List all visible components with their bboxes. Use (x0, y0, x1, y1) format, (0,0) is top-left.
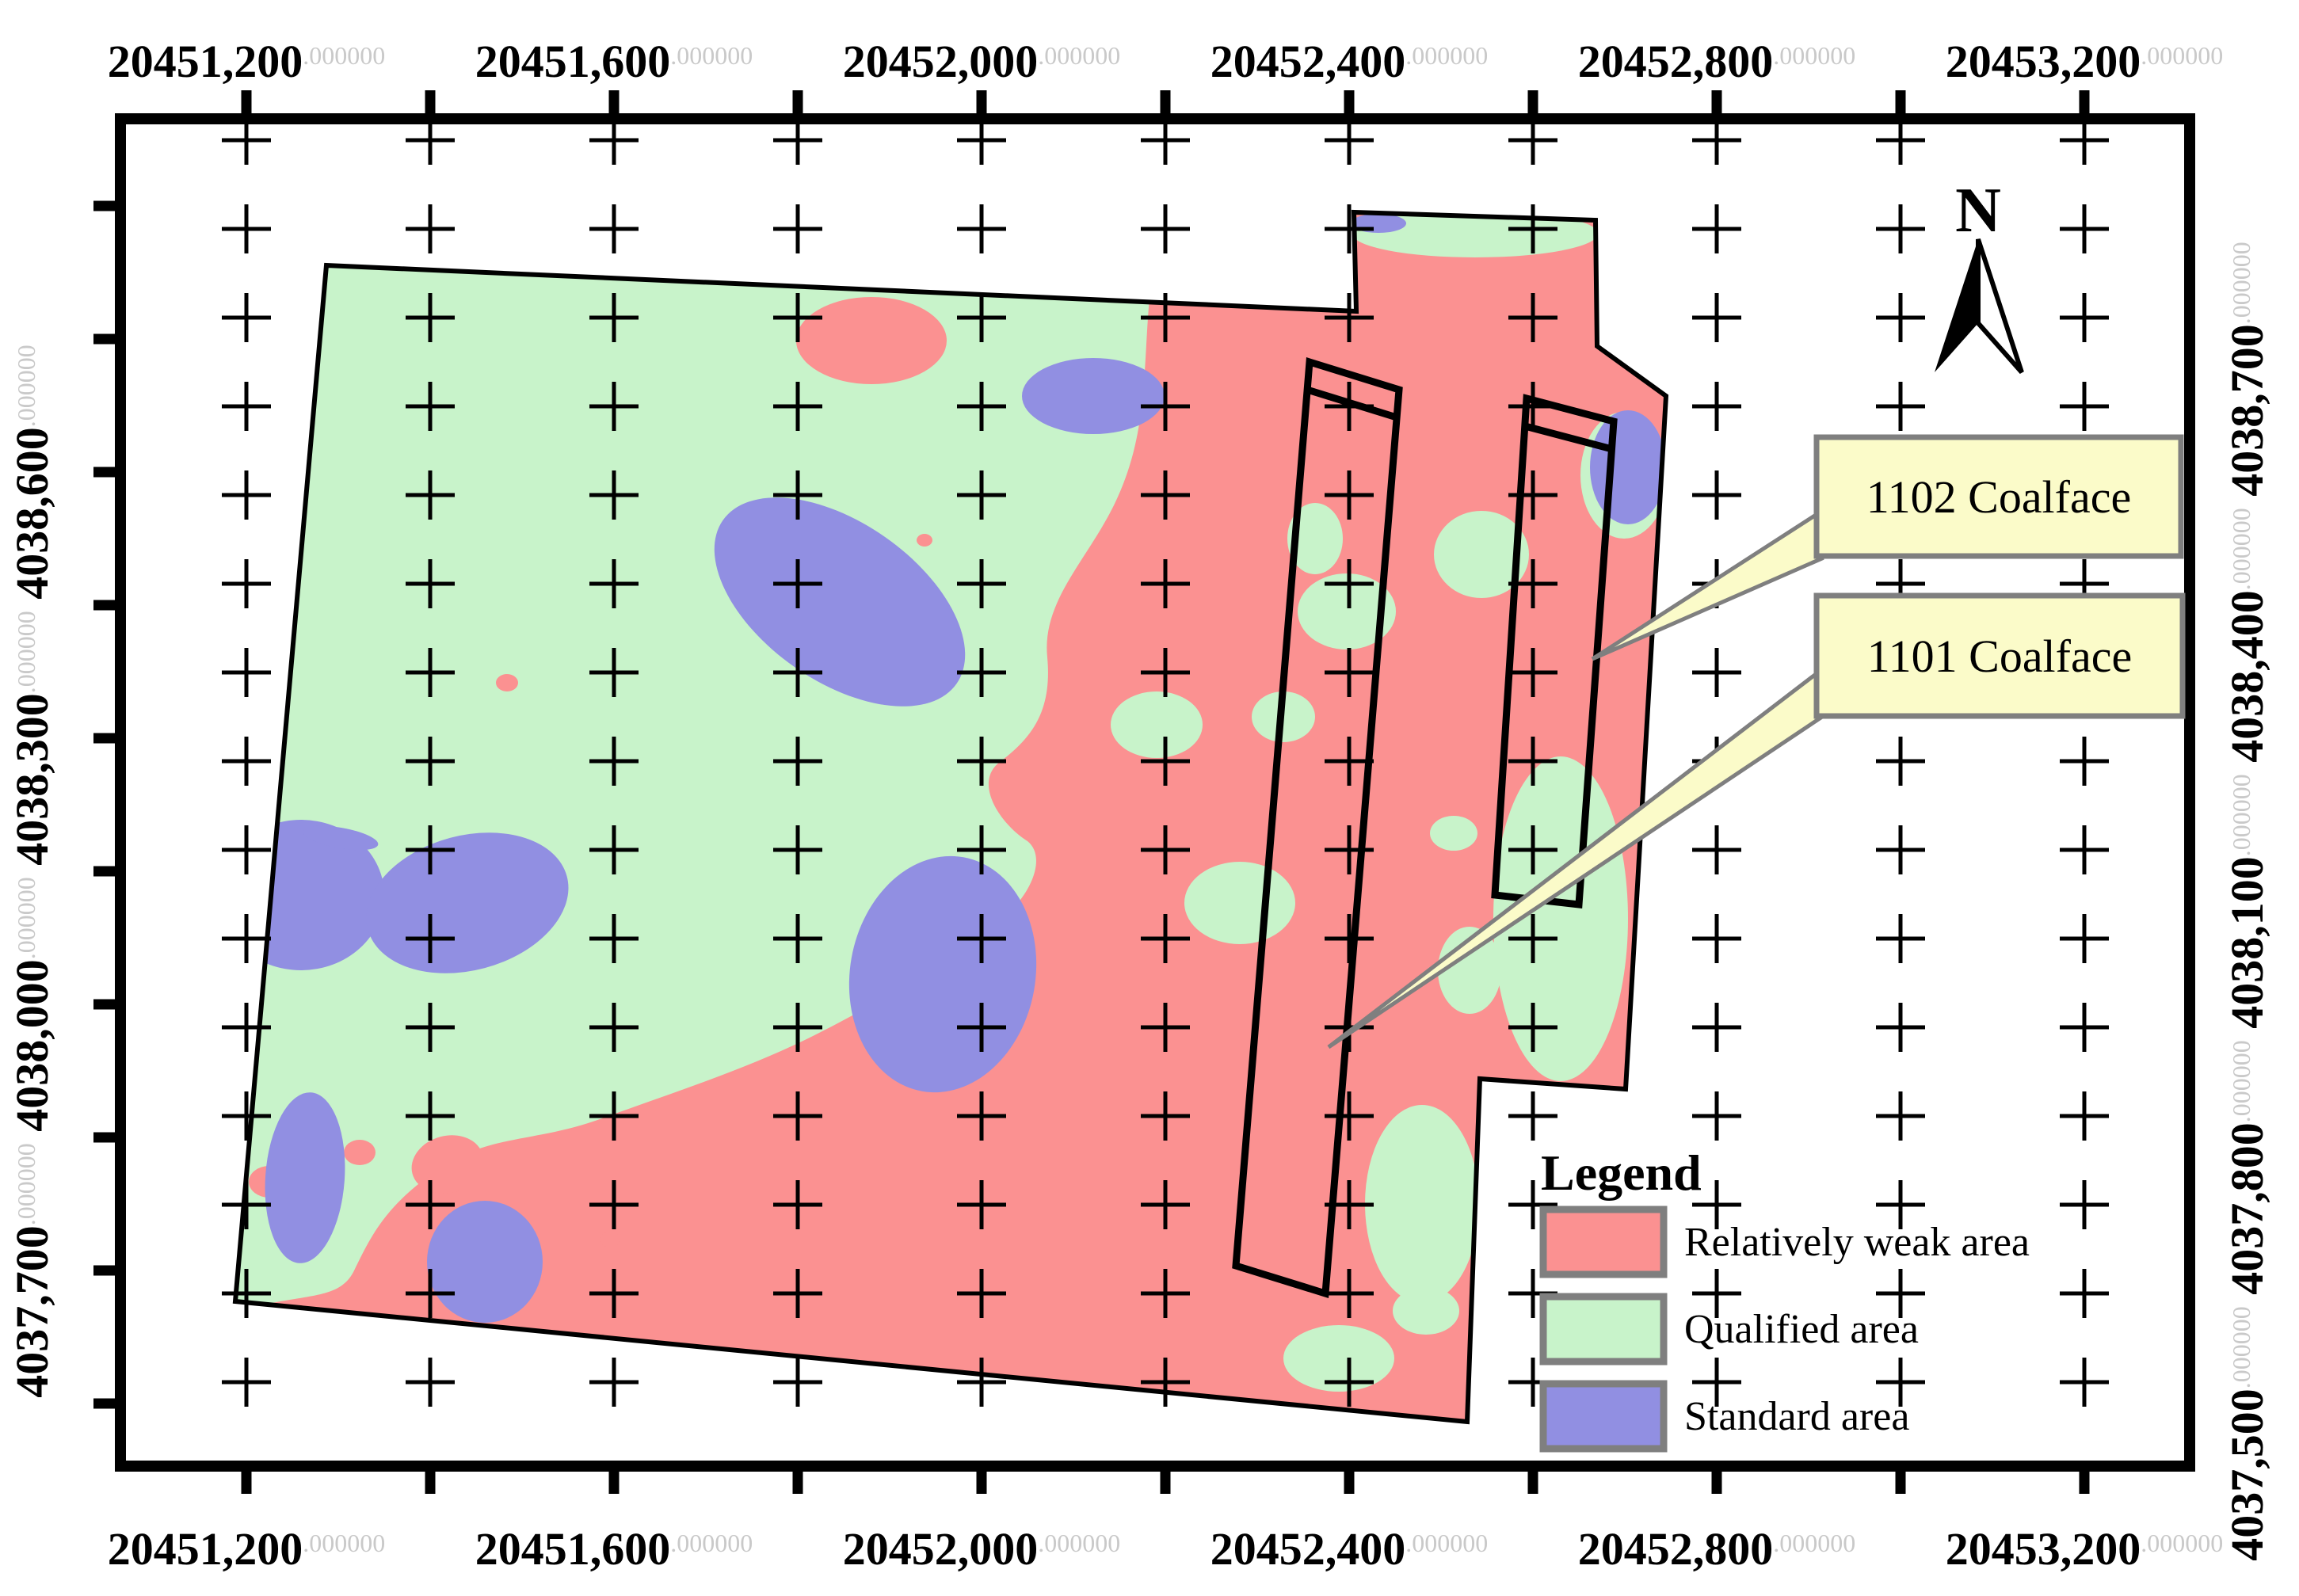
axis-decimal-suffix: .000000 (670, 1529, 753, 1557)
axis-number: 4038,600 (6, 427, 58, 600)
axis-number: 4038,100 (2221, 856, 2273, 1029)
axis-decimal-suffix: .000000 (2227, 242, 2255, 324)
axis-number: 20451,600 (475, 36, 671, 87)
map-figure: 1102 Coalface1101 Coalface LegendRelativ… (0, 0, 2299, 1596)
axis-decimal-suffix: .000000 (12, 877, 40, 959)
axis-decimal-suffix: .000000 (2227, 508, 2255, 590)
axis-number: 20452,000 (843, 36, 1039, 87)
axis-number: 4037,500 (2221, 1388, 2273, 1561)
axis-number: 4038,000 (6, 959, 58, 1132)
axis-number: 20452,000 (843, 1523, 1039, 1575)
axis-decimal-suffix: .000000 (303, 1529, 385, 1557)
axis-decimal-suffix: .000000 (1773, 41, 1855, 70)
legend-swatch (1543, 1297, 1664, 1362)
axis-decimal-suffix: .000000 (1405, 41, 1488, 70)
axis-number: 20452,800 (1578, 36, 1774, 87)
legend-item-label: Relatively weak area (1684, 1220, 2030, 1265)
axis-decimal-suffix: .000000 (2141, 41, 2223, 70)
legend-swatch (1543, 1384, 1664, 1449)
axis-number: 20451,200 (108, 36, 303, 87)
axis-number: 4038,400 (2221, 590, 2273, 763)
weak-area-blob (796, 297, 947, 384)
axis-number: 20452,400 (1211, 1523, 1406, 1575)
figure-canvas: 1102 Coalface1101 Coalface LegendRelativ… (0, 0, 2299, 1596)
north-label: N (1955, 176, 2001, 246)
axis-decimal-suffix: .000000 (2141, 1529, 2223, 1557)
axis-decimal-suffix: .000000 (1038, 1529, 1120, 1557)
callout-label: 1101 Coalface (1867, 630, 2132, 682)
legend-item-label: Standard area (1684, 1394, 1909, 1439)
axis-decimal-suffix: .000000 (303, 41, 385, 70)
axis-decimal-suffix: .000000 (2227, 1306, 2255, 1388)
axis-decimal-suffix: .000000 (1405, 1529, 1488, 1557)
legend-swatch (1543, 1209, 1664, 1274)
axis-decimal-suffix: .000000 (2227, 774, 2255, 856)
axis-number: 4038,300 (6, 693, 58, 866)
axis-decimal-suffix: .000000 (1038, 41, 1120, 70)
axis-number: 20453,200 (1946, 1523, 2141, 1575)
axis-number: 4038,700 (2221, 324, 2273, 497)
axis-decimal-suffix: .000000 (12, 611, 40, 693)
axis-decimal-suffix: .000000 (12, 345, 40, 427)
axis-decimal-suffix: .000000 (2227, 1040, 2255, 1122)
axis-number: 20453,200 (1946, 36, 2141, 87)
legend-title: Legend (1541, 1145, 1702, 1201)
axis-number: 20451,200 (108, 1523, 303, 1575)
axis-decimal-suffix: .000000 (1773, 1529, 1855, 1557)
axis-decimal-suffix: .000000 (670, 41, 753, 70)
axis-number: 20452,400 (1211, 36, 1406, 87)
axis-number: 20451,600 (475, 1523, 671, 1575)
axis-number: 4037,700 (6, 1225, 58, 1398)
axis-number: 4037,800 (2221, 1122, 2273, 1295)
axis-decimal-suffix: .000000 (12, 1143, 40, 1225)
legend-item-label: Qualified area (1684, 1307, 1919, 1352)
axis-number: 20452,800 (1578, 1523, 1774, 1575)
callout-label: 1102 Coalface (1866, 471, 2131, 523)
